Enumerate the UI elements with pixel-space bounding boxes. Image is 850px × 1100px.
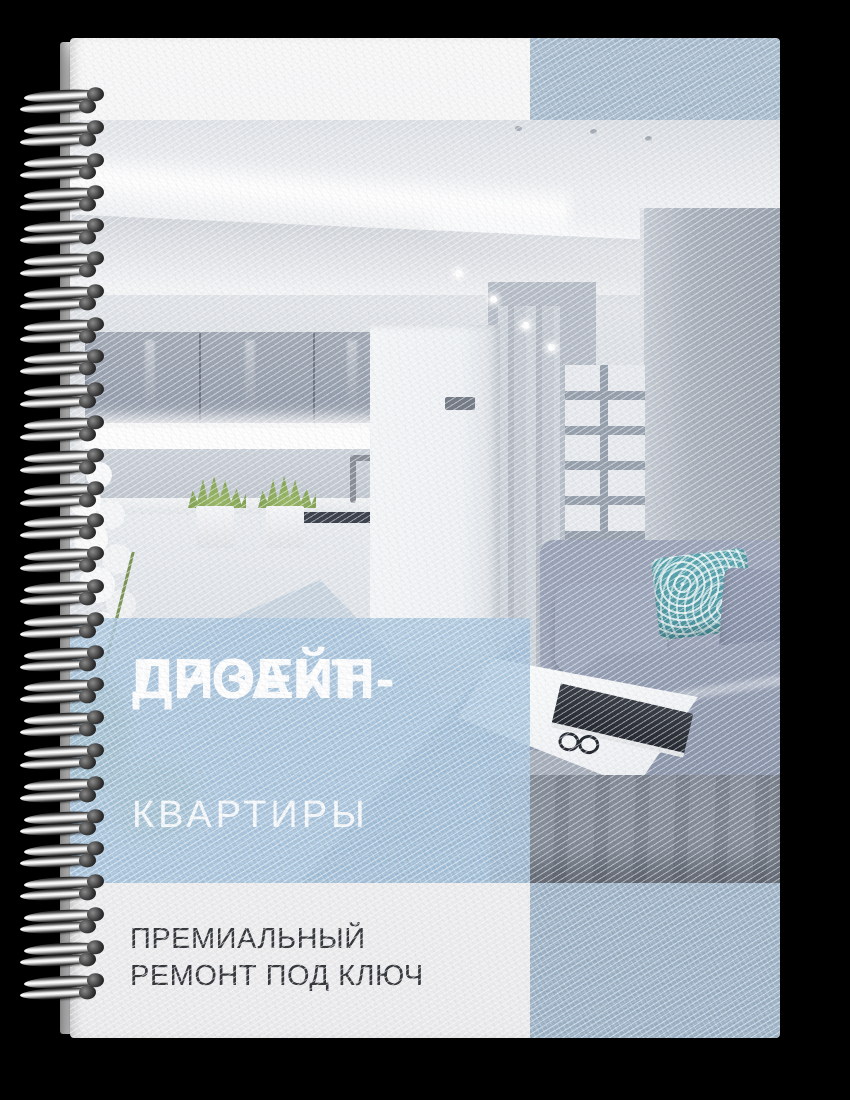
binding-coil <box>24 156 104 182</box>
fridge-display <box>445 397 475 410</box>
photo-plant-pot <box>196 506 234 548</box>
cover-tagline: ПРЕМИАЛЬНЫЙ РЕМОНТ ПОД КЛЮЧ <box>130 921 530 995</box>
binding-coil <box>24 812 104 838</box>
binding-coil <box>24 123 104 149</box>
binding-coil <box>24 188 104 214</box>
notebook-mockup: ДИЗАЙН- ПРОЕКТ КВАРТИРЫ ПРЕМИАЛЬНЫЙ РЕМО… <box>0 0 850 1100</box>
interior-photo: ДИЗАЙН- ПРОЕКТ КВАРТИРЫ <box>70 120 780 883</box>
binding-coil <box>24 320 104 346</box>
photo-fridge-column <box>370 325 500 655</box>
cabinet-seam <box>199 332 201 428</box>
binding-coil <box>24 287 104 313</box>
photo-plant-pot <box>266 506 304 548</box>
binding-coil <box>24 648 104 674</box>
binding-coil <box>24 484 104 510</box>
cover-title-line2: ПРОЕКТ <box>132 648 367 710</box>
photo-faucet-arm <box>350 455 372 461</box>
photo-ceiling-fixture <box>645 136 652 141</box>
title-band: ДИЗАЙН- ПРОЕКТ КВАРТИРЫ <box>70 618 530 883</box>
binding-coil <box>24 549 104 575</box>
cabinet-reflection <box>145 340 155 410</box>
photo-rug <box>490 775 780 883</box>
photo-faucet <box>350 455 356 503</box>
binding-coil <box>24 582 104 608</box>
binding-coil <box>24 418 104 444</box>
binding-coil <box>24 779 104 805</box>
cabinet-reflection <box>245 340 255 410</box>
binding-coil <box>24 516 104 542</box>
binding-coil <box>24 221 104 247</box>
binding-coil <box>24 352 104 378</box>
binding-coil <box>24 746 104 772</box>
cabinet-reflection <box>347 340 357 410</box>
binding-coil <box>24 254 104 280</box>
photo-spotlight <box>455 270 462 277</box>
notebook-cover: ДИЗАЙН- ПРОЕКТ КВАРТИРЫ ПРЕМИАЛЬНЫЙ РЕМО… <box>70 38 780 1038</box>
binding-coil <box>24 451 104 477</box>
binding-coil <box>24 680 104 706</box>
binding-coil <box>24 976 104 1002</box>
cabinet-seam <box>313 332 315 428</box>
binding-coil <box>24 713 104 739</box>
binding-coil <box>24 385 104 411</box>
photo-spotlight <box>522 322 529 329</box>
binding-coil <box>24 90 104 116</box>
tagline-line2: РЕМОНТ ПОД КЛЮЧ <box>130 958 530 995</box>
cover-subtitle: КВАРТИРЫ <box>132 794 369 837</box>
top-right-accent-block <box>530 38 780 120</box>
photo-spotlight <box>548 344 555 351</box>
photo-ceiling-fixture <box>515 126 522 131</box>
binding-coil <box>24 943 104 969</box>
binding-coil <box>24 910 104 936</box>
photo-spotlight <box>490 296 497 303</box>
binding-coil <box>24 844 104 870</box>
bottom-right-accent-block <box>530 883 780 1038</box>
binding-coil <box>24 877 104 903</box>
tagline-line1: ПРЕМИАЛЬНЫЙ <box>130 921 530 958</box>
photo-ceiling-fixture <box>590 129 597 134</box>
binding-coil <box>24 615 104 641</box>
